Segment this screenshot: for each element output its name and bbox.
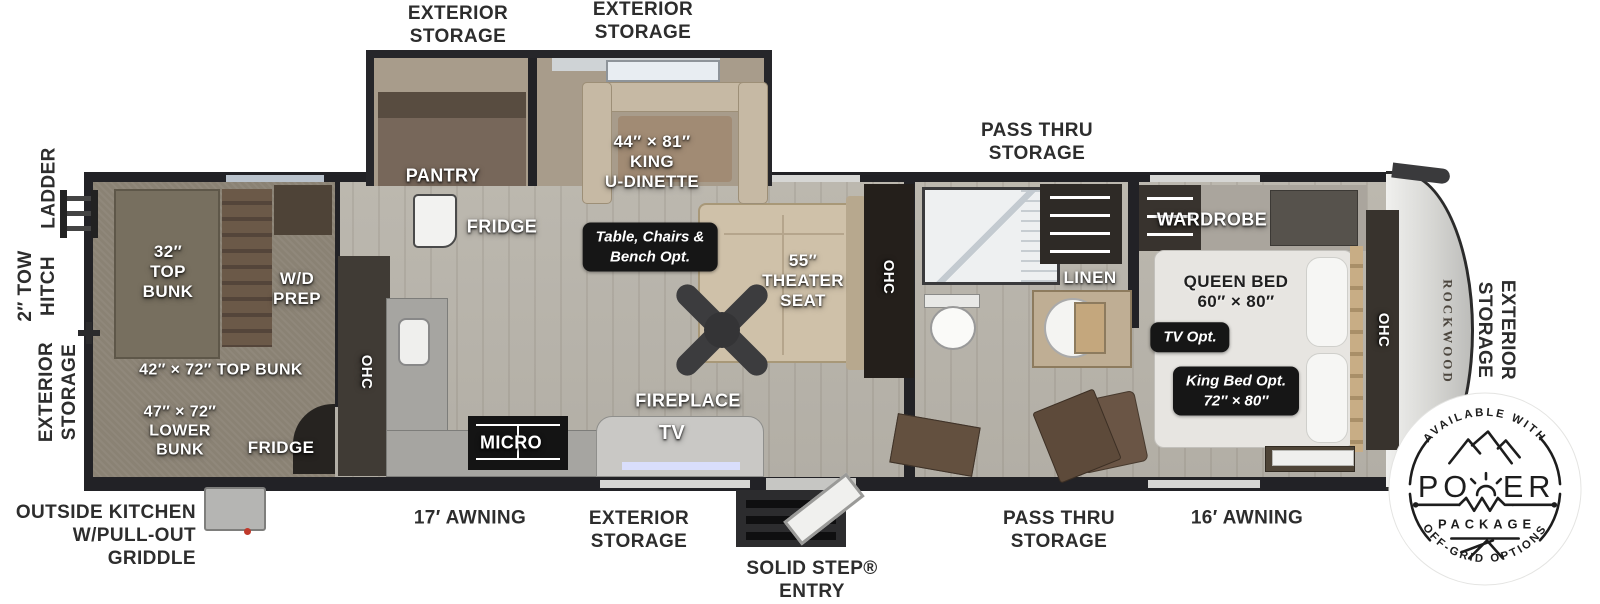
wardrobe-label: WARDROBE — [1157, 209, 1267, 230]
wd-prep-cabinet — [274, 185, 332, 235]
tv-label: TV — [659, 422, 685, 446]
bunk42-label: 42″ × 72″ TOP BUNK — [139, 362, 303, 381]
bunk32-label: 32″ TOP BUNK — [143, 242, 194, 302]
badge-power-left: PO — [1418, 469, 1472, 504]
badge-power-right: ER — [1503, 469, 1556, 504]
power-package-badge: AVAILABLE WITH OFF-GRID OPTIONS PO ER PA… — [1386, 390, 1584, 588]
label-pass-thru-top: PASS THRU STORAGE — [981, 119, 1093, 165]
kitchen-fridge-label: FRIDGE — [467, 216, 537, 237]
label-outside-kitchen: OUTSIDE KITCHEN W/PULL-OUT GRIDDLE — [0, 501, 196, 571]
label-awning-16: 16′ AWNING — [1191, 506, 1303, 529]
outside-kitchen-unit — [204, 487, 266, 531]
bedroom-ohc-label: OHC — [1374, 313, 1392, 348]
king-bed-option-box: King Bed Opt. 72″ × 80″ — [1173, 367, 1299, 416]
queen-bed-label: QUEEN BED 60″ × 80″ — [1184, 272, 1289, 312]
label-exterior-storage-right: EXTERIOR STORAGE — [1473, 280, 1519, 380]
dinette-option-box: Table, Chairs & Bench Opt. — [583, 223, 718, 272]
label-solid-step: SOLID STEP® ENTRY — [746, 557, 877, 603]
fireplace-label: FIREPLACE — [635, 390, 741, 411]
bunk47-label: 47″ × 72″ LOWER BUNK — [144, 404, 217, 461]
dinette-bench-right — [738, 82, 768, 204]
kitchen-fridge-icon — [413, 194, 457, 248]
window-living-top — [772, 175, 860, 182]
brand-label: ROCKWOOD — [1440, 279, 1455, 385]
linen-cabinet — [1040, 184, 1122, 264]
linen-label: LINEN — [1064, 268, 1117, 288]
label-exterior-storage-bottom: EXTERIOR STORAGE — [589, 507, 689, 553]
wd-prep-label: W/D PREP — [273, 269, 321, 309]
tv-console-glow — [622, 462, 740, 470]
bed-pillow-2 — [1306, 353, 1348, 443]
wardrobe-vent — [1270, 190, 1358, 246]
badge-package-text: PACKAGE — [1438, 517, 1536, 532]
bed-headboard — [1350, 246, 1363, 452]
slide-divider-wall — [528, 58, 537, 186]
kitchen-ohc-label: OHC — [357, 355, 375, 390]
kitchen-sink-icon — [398, 318, 430, 366]
label-pass-thru-bottom: PASS THRU STORAGE — [1003, 507, 1115, 553]
theater-backrest — [846, 196, 866, 370]
bath-mirror-cabinet — [1074, 302, 1106, 354]
label-exterior-storage-top-a: EXTERIOR STORAGE — [408, 2, 508, 48]
label-ladder: LADDER — [37, 147, 60, 229]
window-tv-bottom — [600, 480, 750, 488]
window-bed-bottom — [1148, 480, 1260, 488]
toilet-icon — [930, 306, 976, 350]
bed-bench — [1272, 450, 1354, 466]
label-tow-hitch: 2″ TOW HITCH — [14, 250, 60, 321]
bed-pillow-1 — [1306, 257, 1348, 347]
dinette-label: 44″ × 81″ KING U-DINETTE — [605, 132, 699, 192]
micro-label: MICRO — [480, 432, 542, 453]
label-exterior-storage-left: EXTERIOR STORAGE — [35, 342, 81, 442]
bunk-stairs — [222, 189, 272, 347]
window-bunk-top — [226, 175, 324, 182]
hitch-icon — [78, 322, 100, 344]
ladder-icon — [60, 190, 98, 238]
bunk-fridge-label: FRIDGE — [248, 438, 315, 458]
tv-option-box: TV Opt. — [1150, 322, 1229, 352]
pantry-shelf — [378, 92, 526, 118]
pantry-label: PANTRY — [406, 165, 480, 186]
living-ohc-label: OHC — [879, 260, 897, 295]
label-awning-17: 17′ AWNING — [414, 506, 526, 529]
label-exterior-storage-top-b: EXTERIOR STORAGE — [593, 0, 693, 44]
window-bedroom-top — [1150, 175, 1260, 182]
slide-skylight — [606, 60, 720, 82]
outside-kitchen-knob — [244, 528, 251, 535]
theater-label: 55″ THEATER SEAT — [762, 251, 844, 311]
rv-floor-plan: ROCKWOOD PANTRY FRIDGE 44″ × 81″ KING U-… — [0, 0, 1600, 604]
